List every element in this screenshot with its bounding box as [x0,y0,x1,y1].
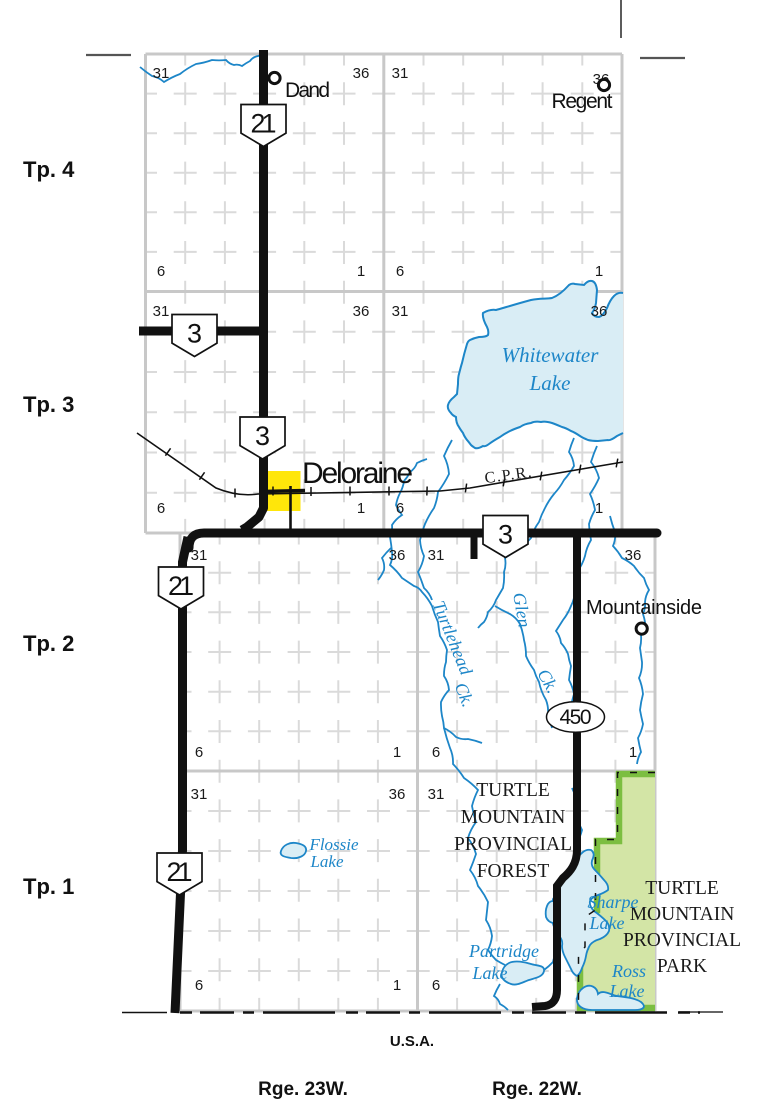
svg-text:1: 1 [357,500,365,517]
svg-text:Lake: Lake [609,981,645,1001]
svg-text:TURTLE: TURTLE [476,780,550,801]
svg-text:Deloraine: Deloraine [302,457,413,490]
svg-text:1: 1 [393,744,401,761]
svg-text:MOUNTAIN: MOUNTAIN [461,807,566,828]
svg-text:6: 6 [432,977,440,994]
svg-text:Ross: Ross [611,961,646,981]
svg-text:U.S.A.: U.S.A. [390,1033,434,1050]
svg-text:31: 31 [191,786,208,803]
svg-text:36: 36 [389,786,406,803]
svg-text:1: 1 [357,263,365,280]
svg-text:21: 21 [167,857,193,887]
svg-text:Lake: Lake [529,371,571,395]
svg-text:36: 36 [353,65,370,82]
svg-text:31: 31 [428,786,445,803]
svg-text:31: 31 [153,65,170,82]
svg-text:Rge. 23W.: Rge. 23W. [258,1079,348,1100]
svg-text:Partridge: Partridge [468,941,539,961]
svg-text:1: 1 [595,263,603,280]
svg-text:3: 3 [255,421,270,451]
svg-text:PROVINCIAL: PROVINCIAL [454,834,572,855]
svg-text:Tp. 2: Tp. 2 [23,631,74,656]
svg-text:Tp. 3: Tp. 3 [23,392,74,417]
svg-text:1: 1 [393,977,401,994]
svg-text:TURTLE: TURTLE [645,878,719,899]
svg-text:6: 6 [157,500,165,517]
svg-text:31: 31 [392,303,409,320]
svg-text:21: 21 [168,571,194,601]
svg-text:1: 1 [629,744,637,761]
svg-text:Rge. 22W.: Rge. 22W. [492,1079,582,1100]
svg-text:36: 36 [625,547,642,564]
svg-text:Lake: Lake [309,852,344,871]
svg-text:Whitewater: Whitewater [502,343,600,367]
svg-text:36: 36 [591,303,608,320]
svg-text:Regent: Regent [552,90,613,113]
svg-text:21: 21 [251,109,277,139]
svg-text:6: 6 [157,263,165,280]
svg-text:PROVINCIAL: PROVINCIAL [623,930,741,951]
svg-text:Tp. 1: Tp. 1 [23,874,74,899]
svg-text:Tp. 4: Tp. 4 [23,157,75,182]
svg-text:36: 36 [389,547,406,564]
svg-text:Lake: Lake [589,913,625,933]
svg-text:FOREST: FOREST [477,861,550,882]
svg-text:36: 36 [353,303,370,320]
svg-text:Dand: Dand [285,79,330,102]
svg-text:6: 6 [195,977,203,994]
svg-text:31: 31 [153,303,170,320]
svg-text:31: 31 [392,65,409,82]
svg-text:6: 6 [432,744,440,761]
svg-text:6: 6 [396,263,404,280]
svg-text:PARK: PARK [657,956,707,977]
svg-text:3: 3 [187,319,202,349]
svg-text:Lake: Lake [472,963,508,983]
svg-text:Sharpe: Sharpe [588,892,639,912]
svg-text:6: 6 [195,744,203,761]
svg-text:Mountainside: Mountainside [586,597,702,619]
svg-text:1: 1 [595,500,603,517]
svg-text:3: 3 [498,520,513,550]
svg-text:MOUNTAIN: MOUNTAIN [630,904,735,925]
svg-text:6: 6 [396,500,404,517]
svg-text:450: 450 [560,706,592,729]
svg-text:31: 31 [428,547,445,564]
